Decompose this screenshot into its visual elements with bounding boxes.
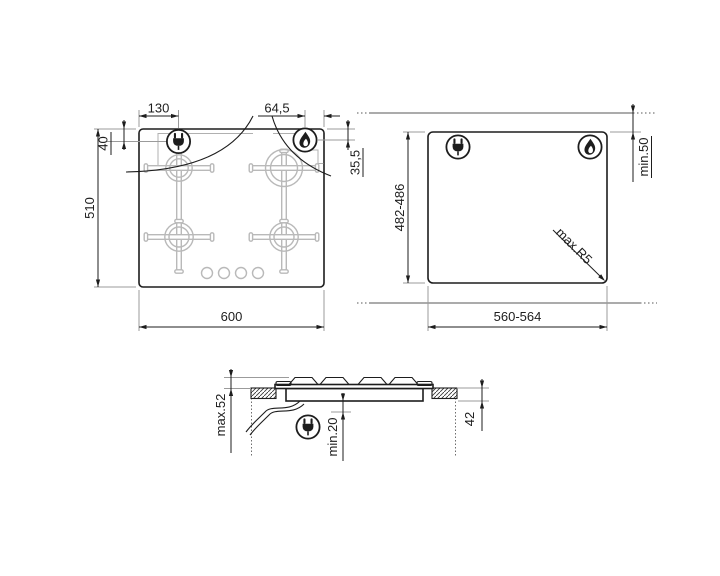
dim-label-min50: min.50 xyxy=(636,137,651,176)
cutout-flame-icon xyxy=(578,135,601,158)
plug-icon xyxy=(167,130,190,153)
knob-1 xyxy=(202,268,213,279)
installation-drawing-page: 130 64,5 40 510 xyxy=(0,0,720,576)
cutout-view: 482-486 560-564 min.50 max.R5 xyxy=(357,104,657,331)
worktop-section-right xyxy=(432,388,457,399)
dim-gas-offset-right: 64,5 xyxy=(258,101,340,119)
cutout-plug-icon xyxy=(446,135,469,158)
dim-label-min20: min.20 xyxy=(325,417,340,456)
dim-clearance-below: min.20 xyxy=(325,393,345,461)
hob-body-outline xyxy=(139,129,324,287)
knob-3 xyxy=(236,268,247,279)
dim-label-560-564: 560-564 xyxy=(494,309,542,324)
dim-cutout-depth: 482-486 xyxy=(392,132,410,283)
side-profile-view: max.52 min.20 42 xyxy=(213,369,489,461)
technical-drawing: 130 64,5 40 510 xyxy=(0,0,720,576)
dim-label-130: 130 xyxy=(148,101,170,116)
worktop-section-left xyxy=(251,388,276,399)
hob-plate-profile xyxy=(275,385,433,389)
flame-icon xyxy=(293,128,316,151)
grate-profile xyxy=(289,378,418,385)
dim-plug-offset-left: 130 xyxy=(139,101,179,119)
dim-cutout-width: 560-564 xyxy=(428,309,607,329)
dim-label-600: 600 xyxy=(221,309,243,324)
dim-label-42: 42 xyxy=(462,412,477,426)
dim-label-64-5: 64,5 xyxy=(264,101,289,116)
dim-depth-below-worktop: 42 xyxy=(462,379,484,431)
dim-rear-clearance: min.50 xyxy=(631,104,652,182)
hob-tub-profile xyxy=(286,389,423,402)
dim-label-482-486: 482-486 xyxy=(392,184,407,232)
dim-plug-offset-top: 40 xyxy=(96,120,127,155)
dim-label-35-5: 35,5 xyxy=(348,150,363,175)
side-plug-icon xyxy=(296,415,319,438)
knob-4 xyxy=(253,268,264,279)
dim-label-max52: max.52 xyxy=(213,394,228,437)
dim-label-510: 510 xyxy=(82,197,97,219)
power-cable xyxy=(246,401,304,435)
dim-hob-depth: 510 xyxy=(82,129,100,287)
dim-height-above: max.52 xyxy=(213,369,233,453)
knob-2 xyxy=(219,268,230,279)
dim-hob-width: 600 xyxy=(139,309,324,329)
hob-top-view: 130 64,5 40 510 xyxy=(82,101,363,332)
